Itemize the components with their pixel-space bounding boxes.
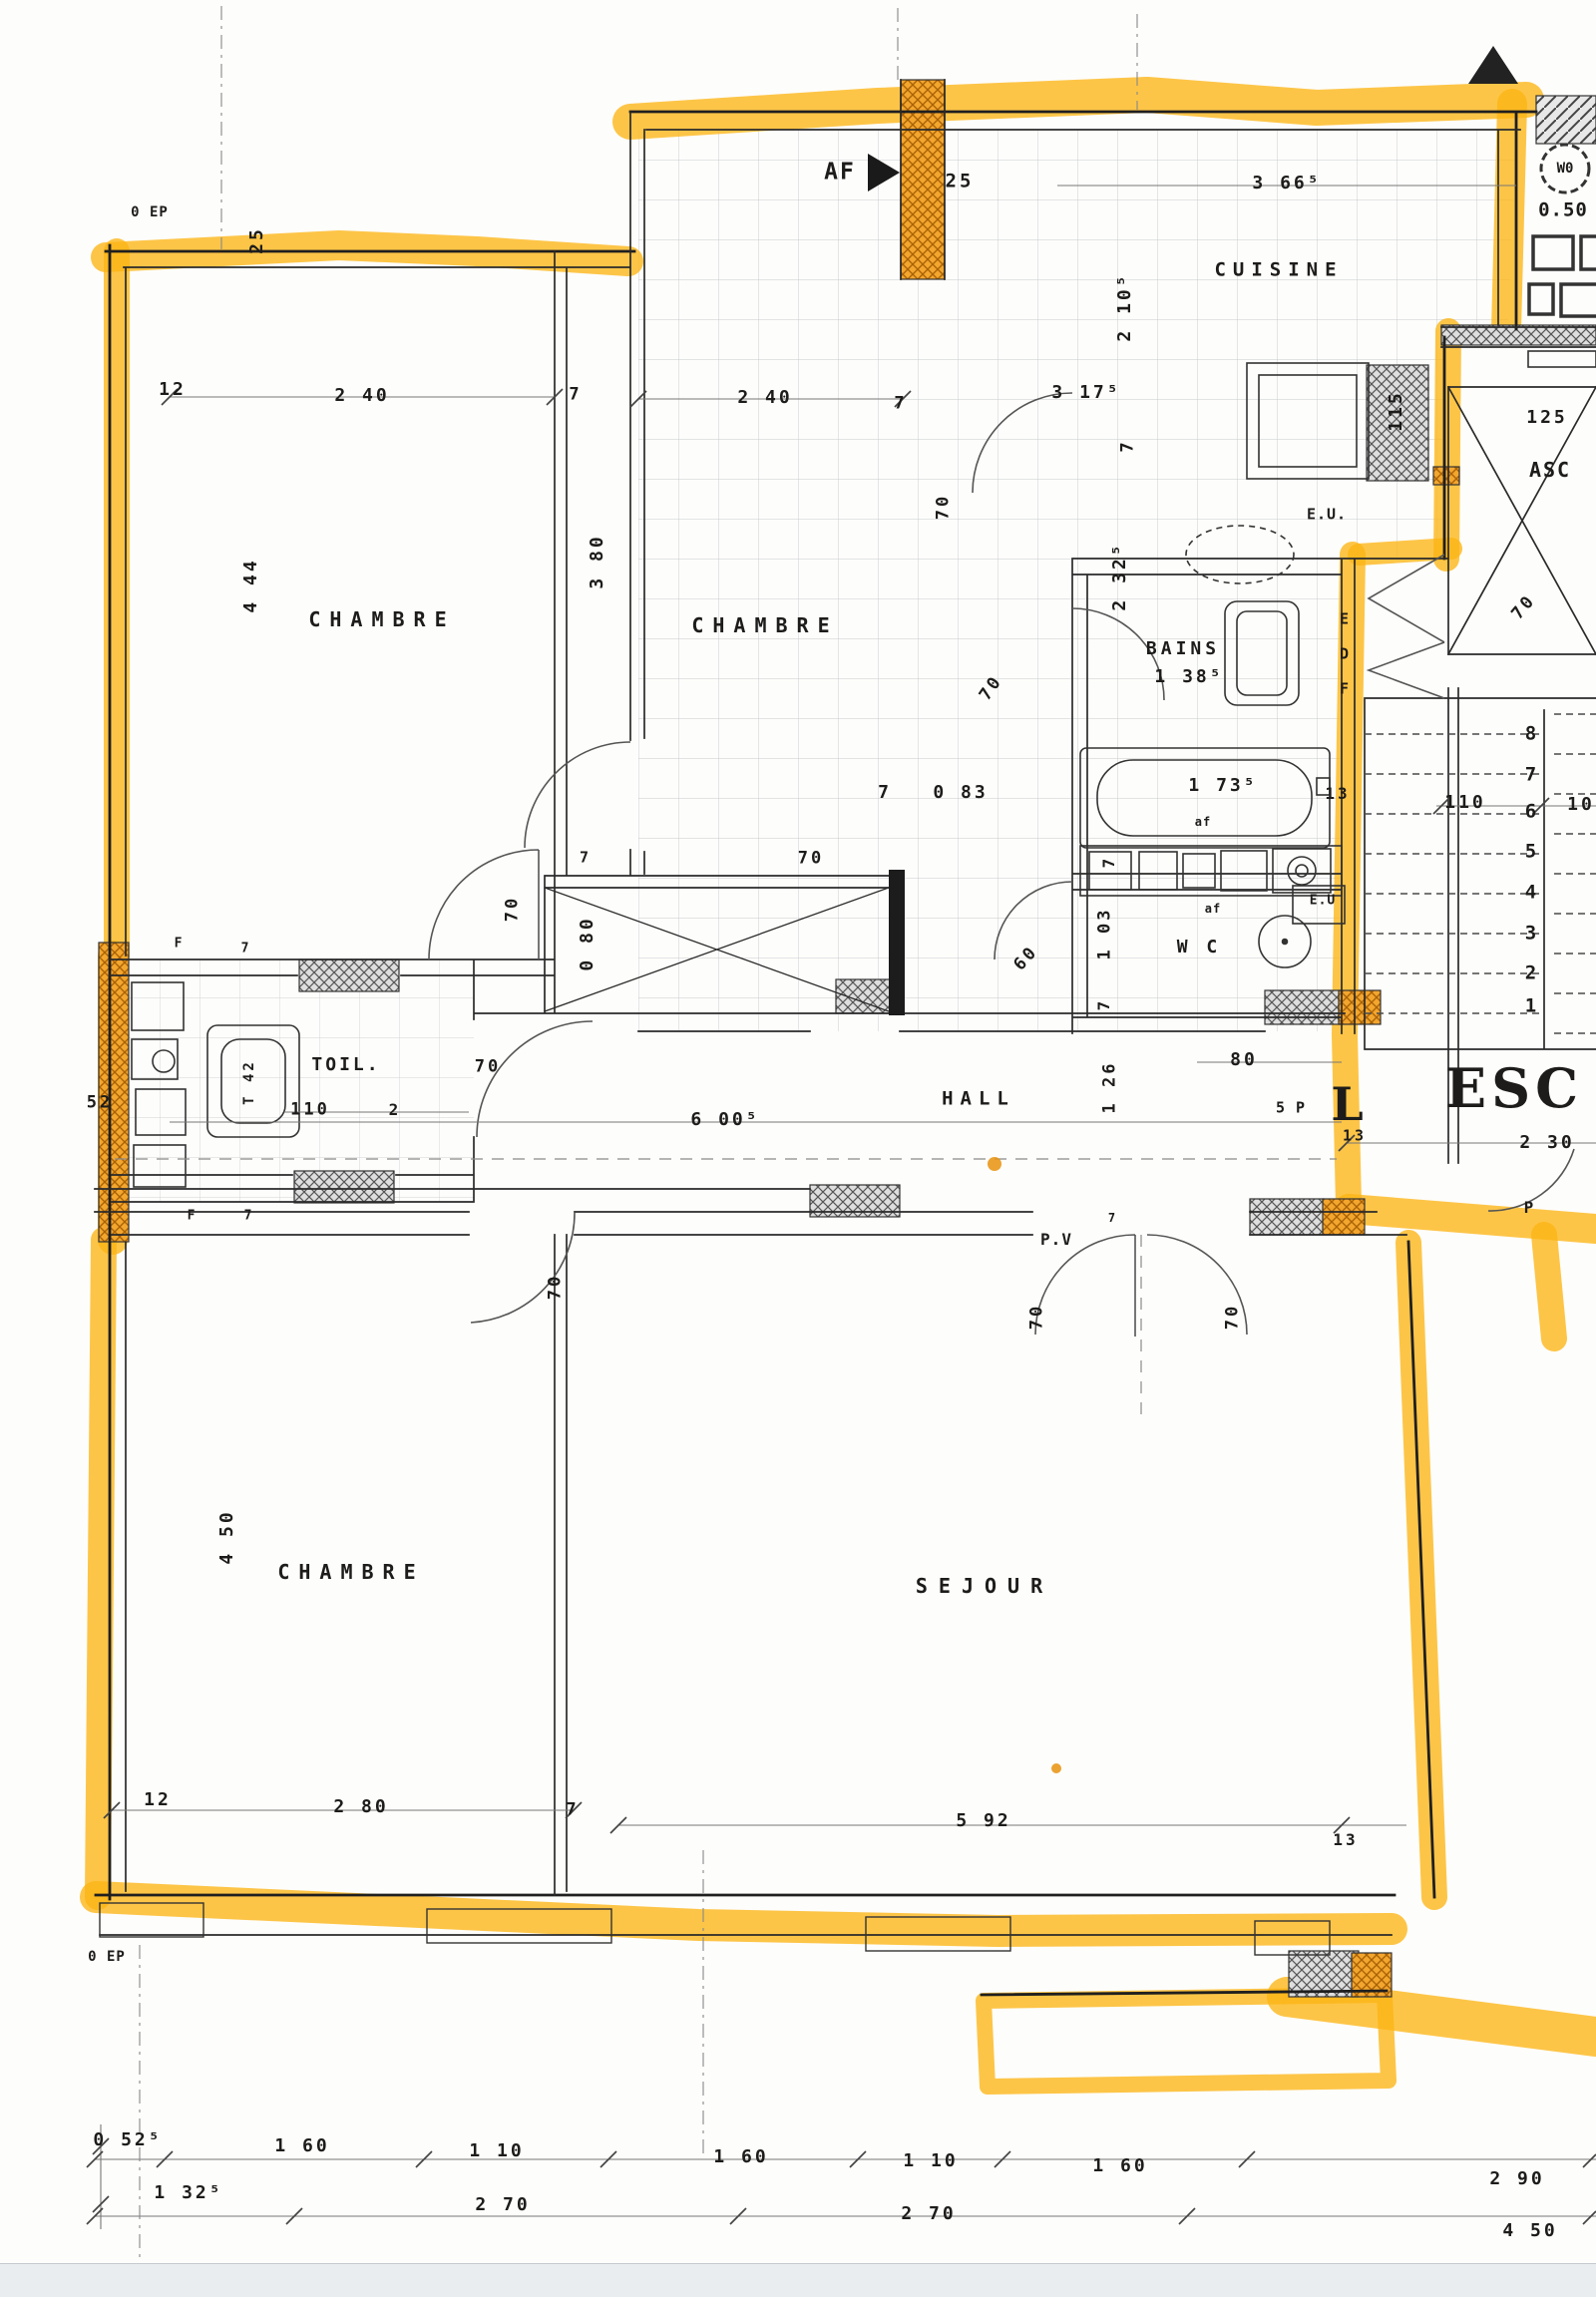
floorplan-scan: 0 EP25122 4072 4074 44CHAMBRE3 80CHAMBRE… [0,0,1596,2297]
w0-symbol-circle [1541,145,1589,192]
tile-floor [112,130,1516,1202]
page-edge-bar [0,2263,1596,2297]
stair-treads [1365,714,1596,1033]
window-sill-bar [1528,351,1596,367]
north-arrow-icon [1468,46,1518,84]
highlighter-dot-hall [988,1157,1001,1171]
floorplan-drawing [0,0,1596,2297]
highlighter-dot-sejour [1051,1763,1061,1773]
closet-end-block [889,870,905,1015]
